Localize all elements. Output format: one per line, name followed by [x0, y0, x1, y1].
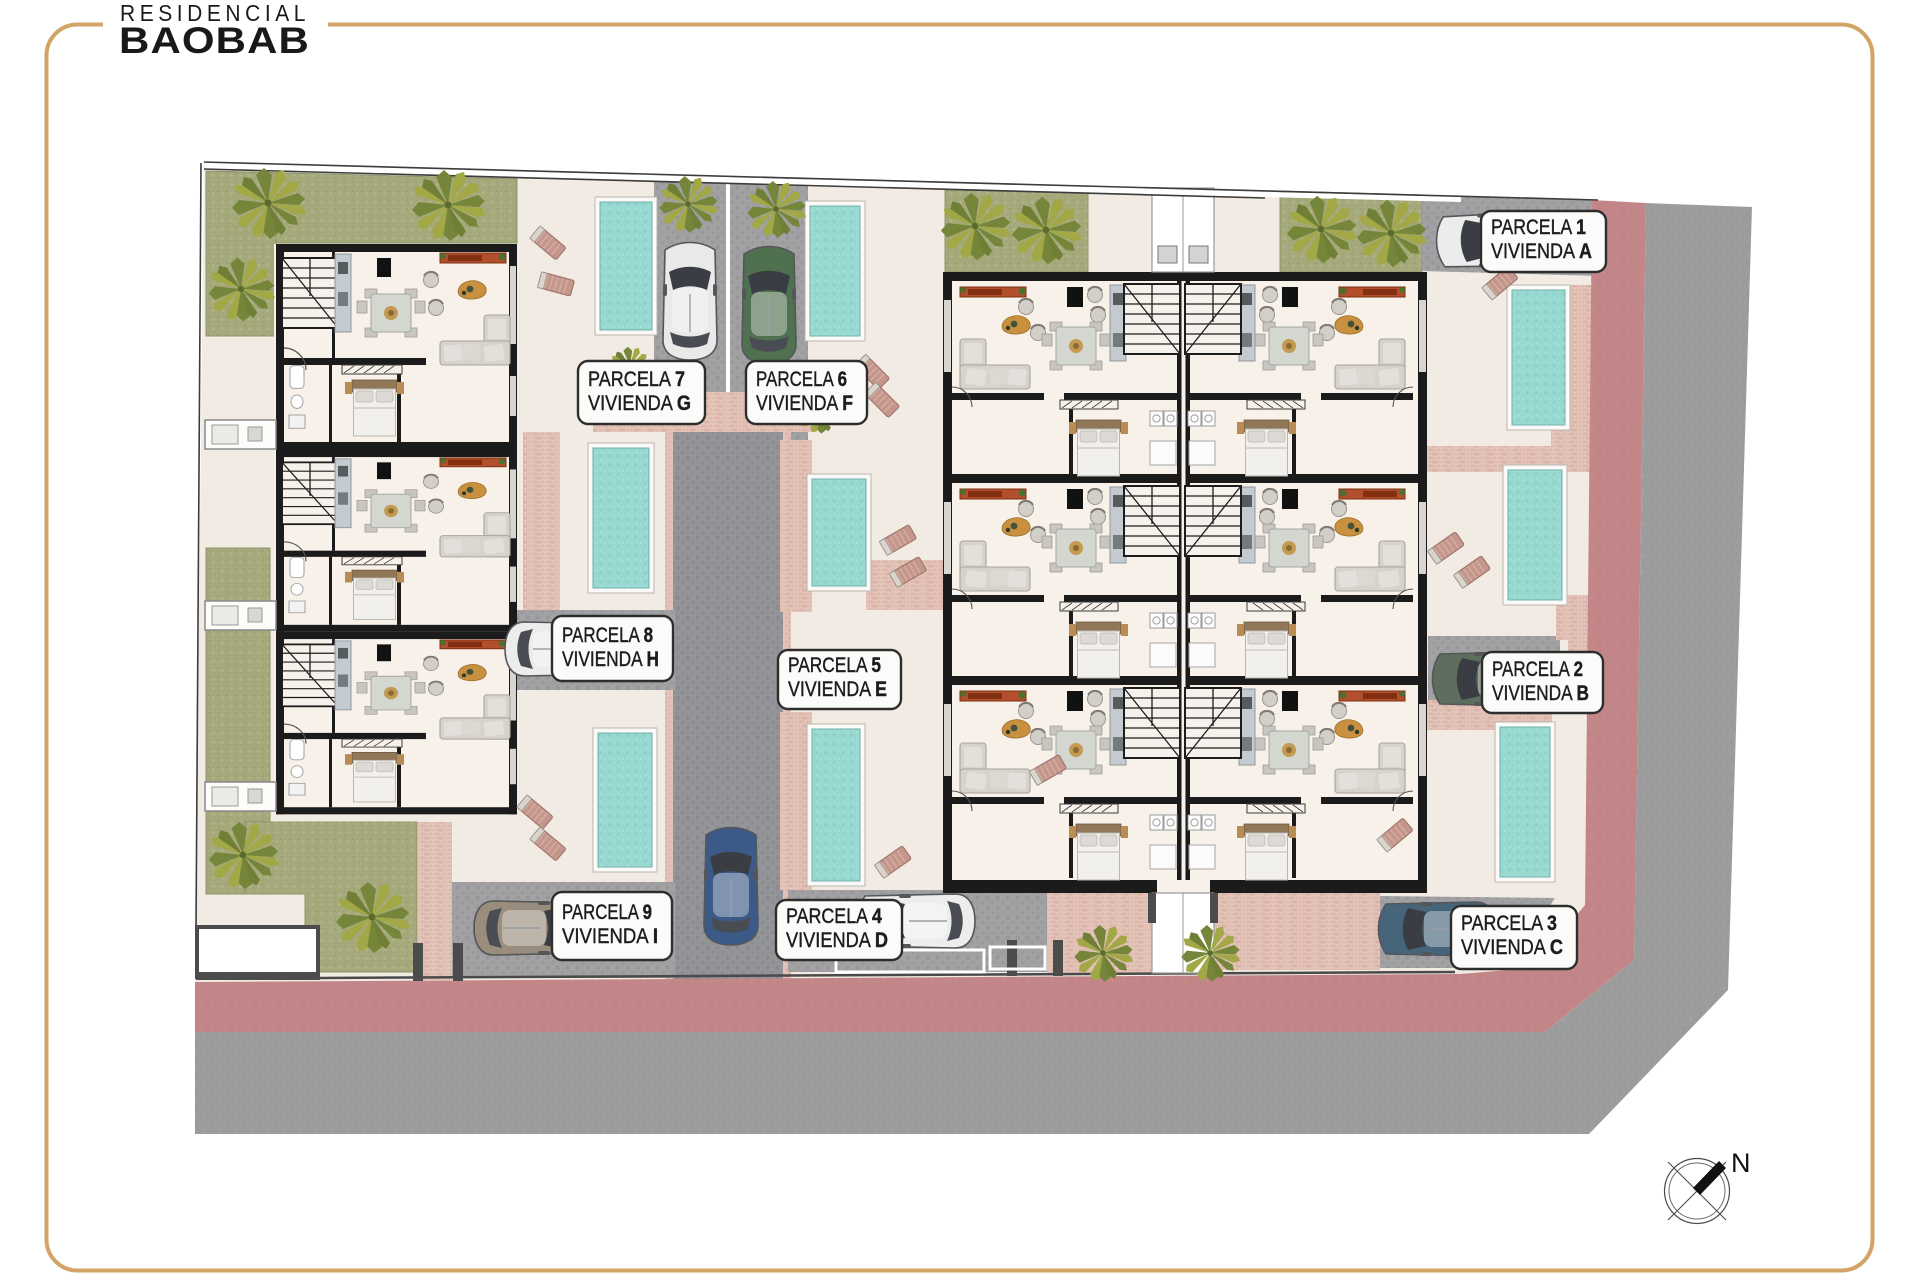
svg-text:BAOBAB: BAOBAB: [119, 20, 310, 61]
svg-text:PARCELA 8: PARCELA 8: [562, 624, 653, 647]
svg-text:PARCELA 1: PARCELA 1: [1491, 216, 1586, 239]
svg-text:VIVIENDA H: VIVIENDA H: [562, 648, 659, 671]
svg-text:PARCELA 3: PARCELA 3: [1461, 912, 1557, 935]
svg-text:VIVIENDA B: VIVIENDA B: [1492, 682, 1589, 705]
svg-text:PARCELA 9: PARCELA 9: [562, 901, 652, 924]
svg-text:PARCELA 4: PARCELA 4: [786, 905, 882, 928]
svg-text:PARCELA 6: PARCELA 6: [756, 368, 847, 391]
svg-text:N: N: [1731, 1148, 1751, 1178]
svg-text:PARCELA 5: PARCELA 5: [788, 654, 881, 677]
svg-text:VIVIENDA I: VIVIENDA I: [562, 925, 658, 948]
svg-text:PARCELA 2: PARCELA 2: [1492, 658, 1583, 681]
svg-text:VIVIENDA A: VIVIENDA A: [1491, 240, 1592, 263]
svg-text:VIVIENDA E: VIVIENDA E: [788, 678, 887, 701]
svg-text:VIVIENDA F: VIVIENDA F: [756, 392, 853, 415]
svg-text:PARCELA 7: PARCELA 7: [588, 368, 685, 391]
svg-text:VIVIENDA C: VIVIENDA C: [1461, 936, 1563, 959]
svg-text:VIVIENDA G: VIVIENDA G: [588, 392, 691, 415]
svg-text:VIVIENDA D: VIVIENDA D: [786, 929, 888, 952]
